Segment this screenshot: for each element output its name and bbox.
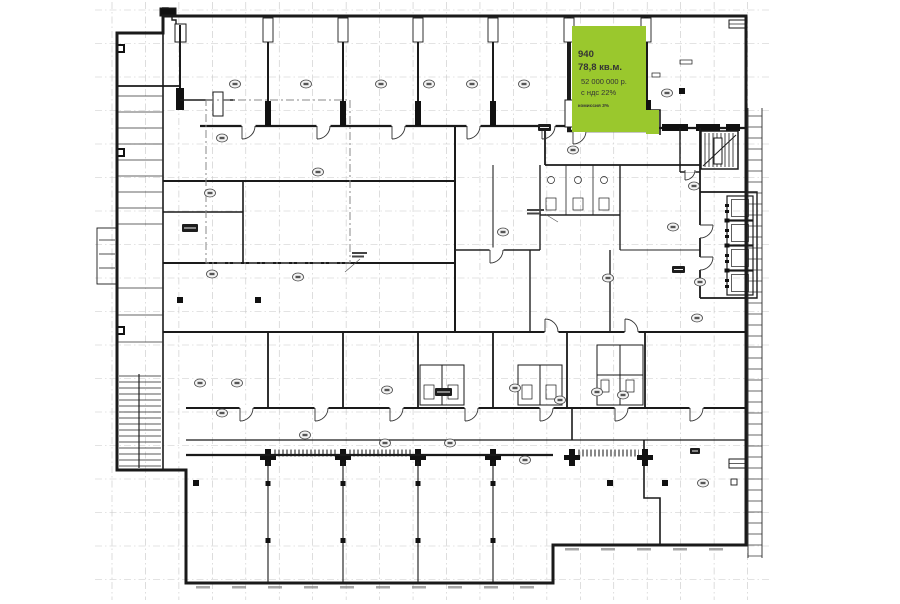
left-wing — [97, 33, 180, 470]
corridor-doors — [240, 319, 704, 421]
bottom-room-band — [163, 332, 746, 545]
staircase-bottom-left — [119, 374, 161, 468]
floor-plan-canvas: 940 78,8 кв.м. 52 000 000 р. с ндс 22% к… — [0, 0, 900, 604]
terrace — [186, 455, 737, 583]
right-wing — [680, 128, 753, 298]
room-number-badges — [195, 80, 709, 487]
unit-940-highlight-tab[interactable] — [646, 110, 659, 134]
unit-commission-label: комиссия 3% — [578, 103, 610, 109]
staircase-top-right — [701, 131, 738, 169]
corridor-glazing — [260, 449, 653, 466]
unit-940[interactable]: 940 78,8 кв.м. 52 000 000 р. с ндс 22% к… — [572, 26, 659, 134]
unit-area-label: 78,8 кв.м. — [578, 62, 622, 73]
central-core — [455, 165, 700, 332]
unit-vat-label: с ндс 22% — [581, 88, 617, 97]
unit-number-label: 940 — [578, 49, 594, 60]
right-gallery — [748, 108, 762, 558]
unit-price-label: 52 000 000 р. — [581, 77, 627, 86]
middle-left-rooms — [163, 100, 455, 332]
column-markers — [177, 88, 685, 486]
floor-plan-page: 940 78,8 кв.м. 52 000 000 р. с ндс 22% к… — [0, 0, 900, 604]
